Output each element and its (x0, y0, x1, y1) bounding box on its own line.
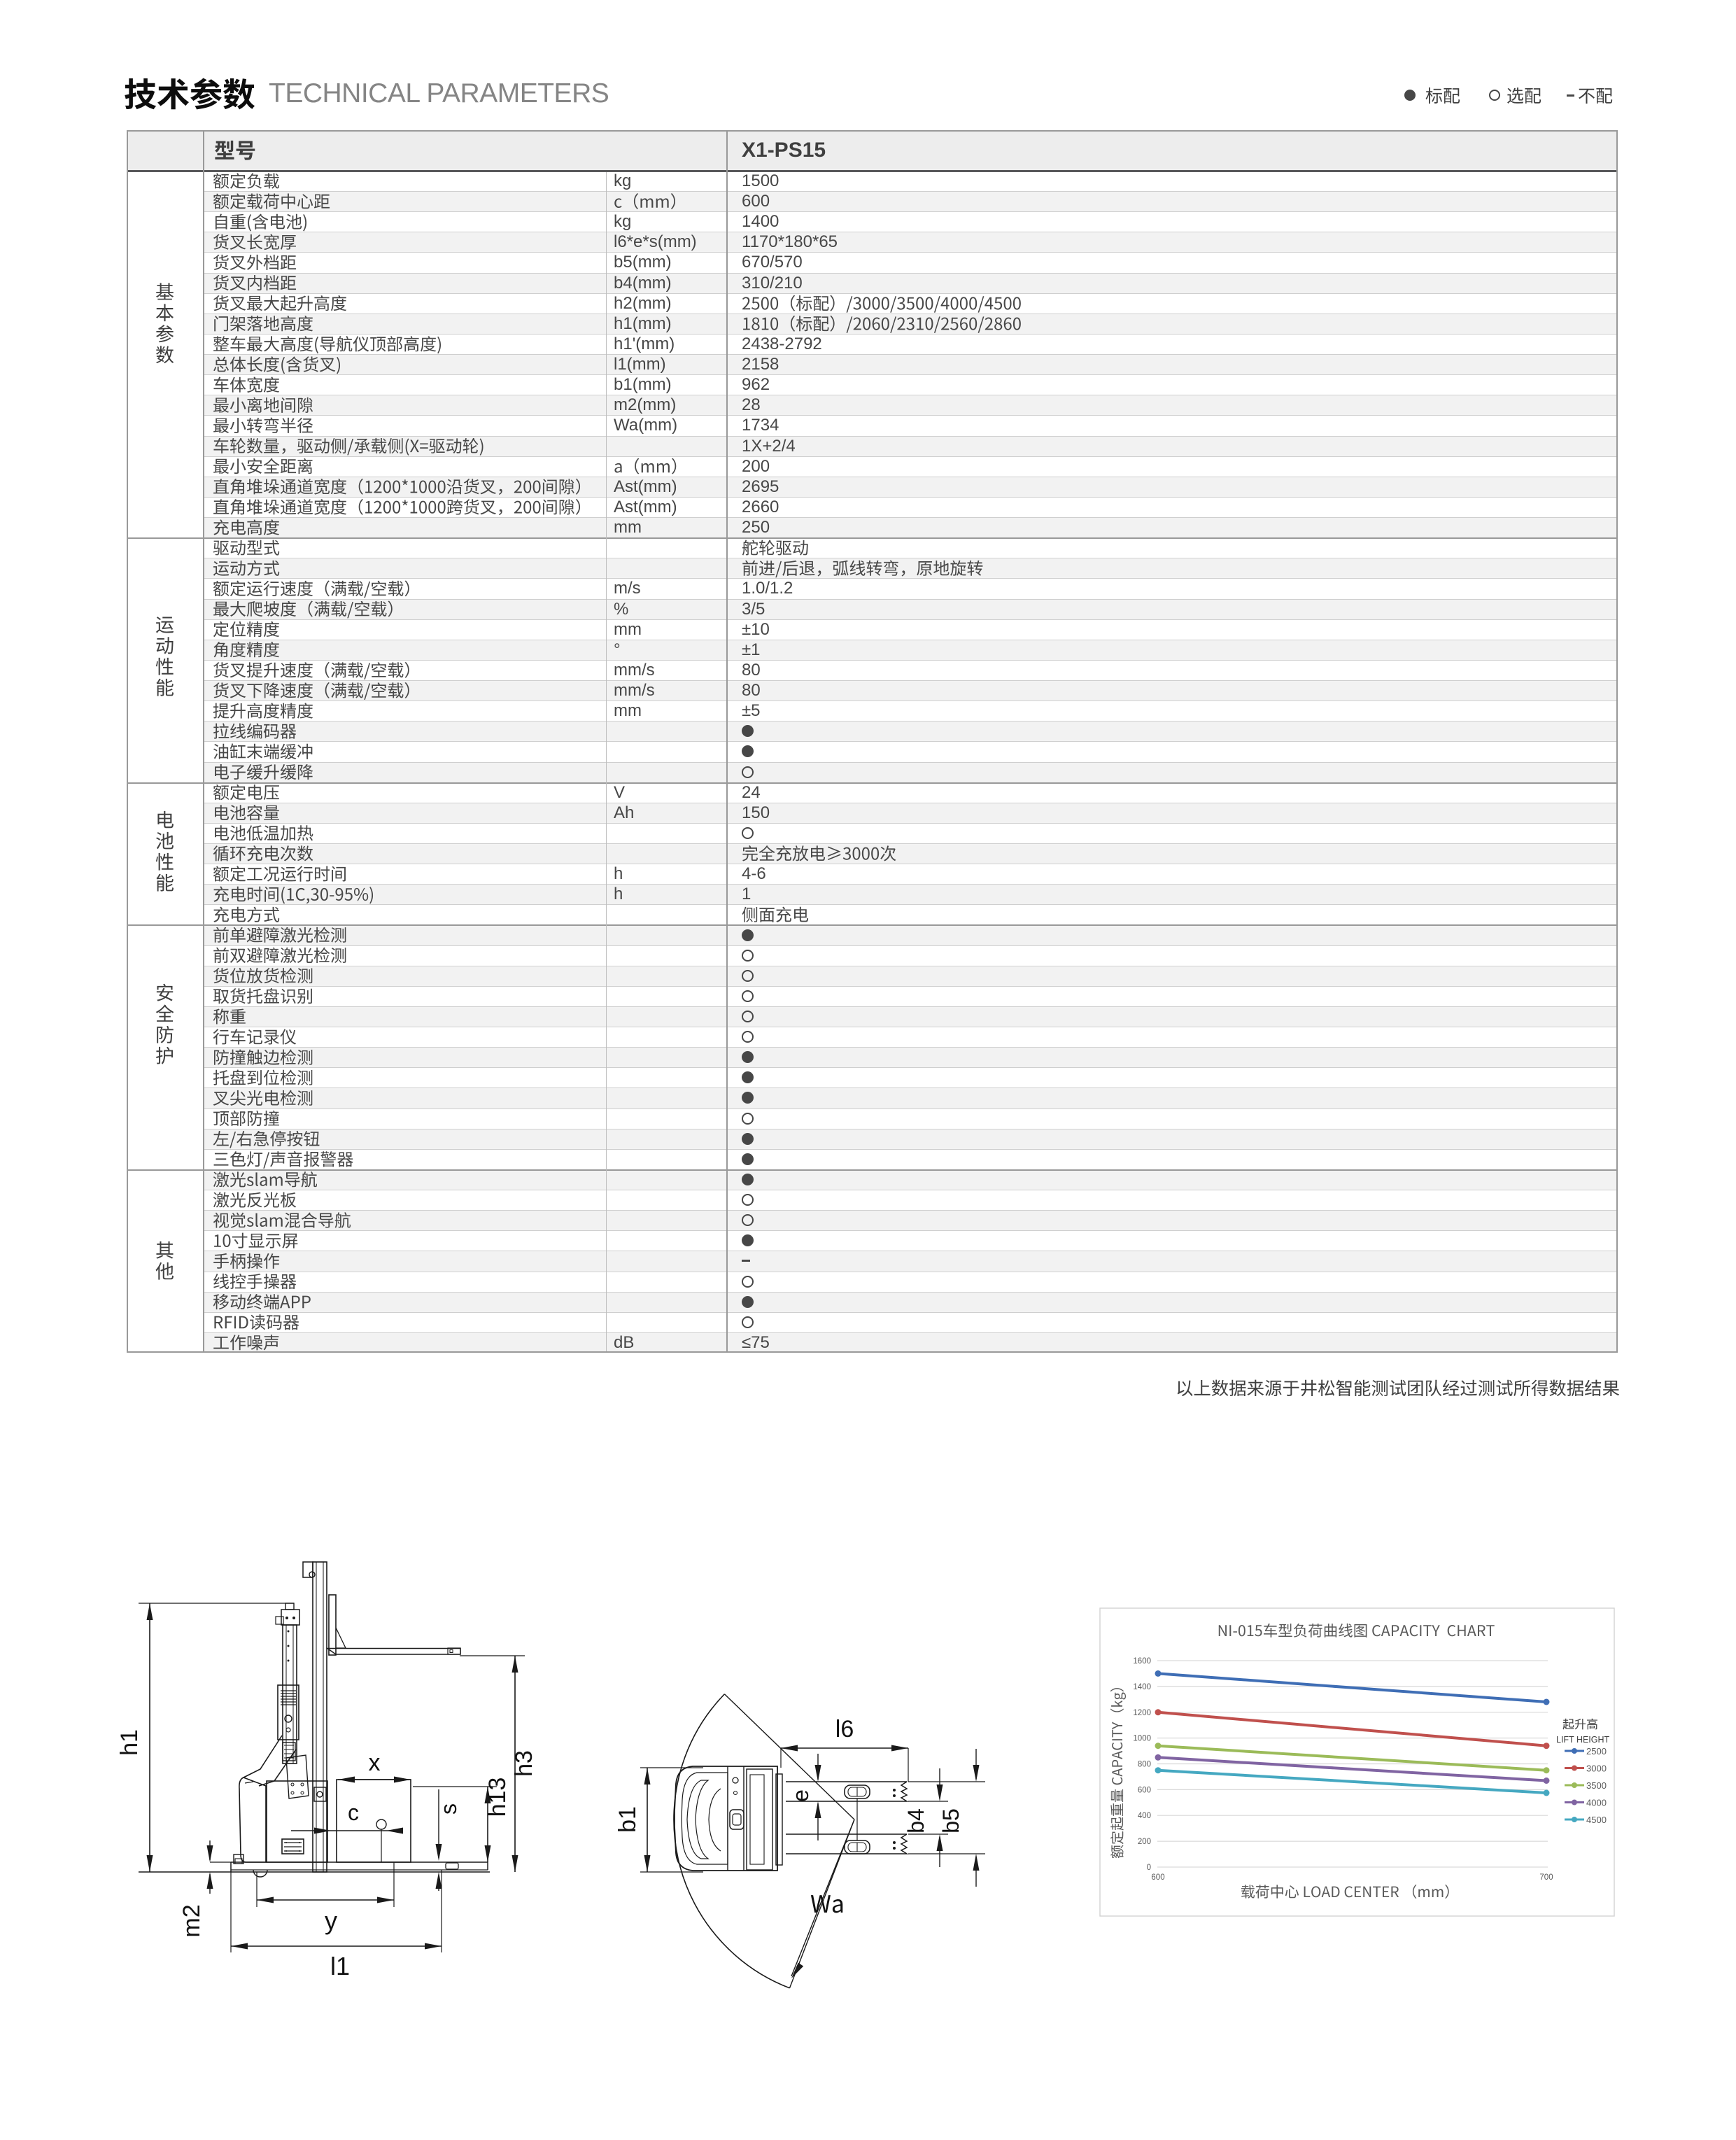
svg-text:h1: h1 (116, 1729, 143, 1756)
svg-text:e: e (788, 1789, 813, 1802)
svg-text:3000: 3000 (1586, 1764, 1607, 1774)
svg-text:y: y (325, 1906, 337, 1935)
svg-text:h13: h13 (484, 1778, 511, 1817)
svg-text:2500: 2500 (1586, 1746, 1607, 1757)
svg-text:l6: l6 (835, 1716, 854, 1743)
svg-text:h3: h3 (511, 1750, 537, 1777)
svg-text:600: 600 (1138, 1786, 1151, 1794)
svg-text:LIFT HEIGHT: LIFT HEIGHT (1556, 1735, 1610, 1745)
svg-text:400: 400 (1138, 1812, 1151, 1820)
svg-text:1000: 1000 (1133, 1735, 1151, 1743)
svg-text:l1: l1 (330, 1952, 350, 1980)
svg-text:x: x (369, 1750, 381, 1776)
svg-text:1600: 1600 (1133, 1657, 1151, 1666)
svg-text:4500: 4500 (1586, 1815, 1607, 1825)
svg-text:m2: m2 (178, 1904, 205, 1937)
svg-text:200: 200 (1138, 1838, 1151, 1846)
svg-text:0: 0 (1147, 1864, 1151, 1872)
svg-text:b5: b5 (938, 1808, 964, 1833)
svg-text:1400: 1400 (1133, 1683, 1151, 1691)
svg-text:b1: b1 (614, 1806, 641, 1833)
svg-text:800: 800 (1138, 1761, 1151, 1769)
svg-text:c: c (348, 1800, 359, 1825)
svg-text:b4: b4 (903, 1808, 929, 1833)
svg-text:3500: 3500 (1586, 1780, 1607, 1791)
svg-text:1200: 1200 (1133, 1709, 1151, 1717)
svg-text:700: 700 (1539, 1873, 1553, 1882)
svg-text:600: 600 (1151, 1873, 1164, 1882)
svg-text:s: s (436, 1803, 461, 1815)
svg-text:4000: 4000 (1586, 1798, 1607, 1808)
